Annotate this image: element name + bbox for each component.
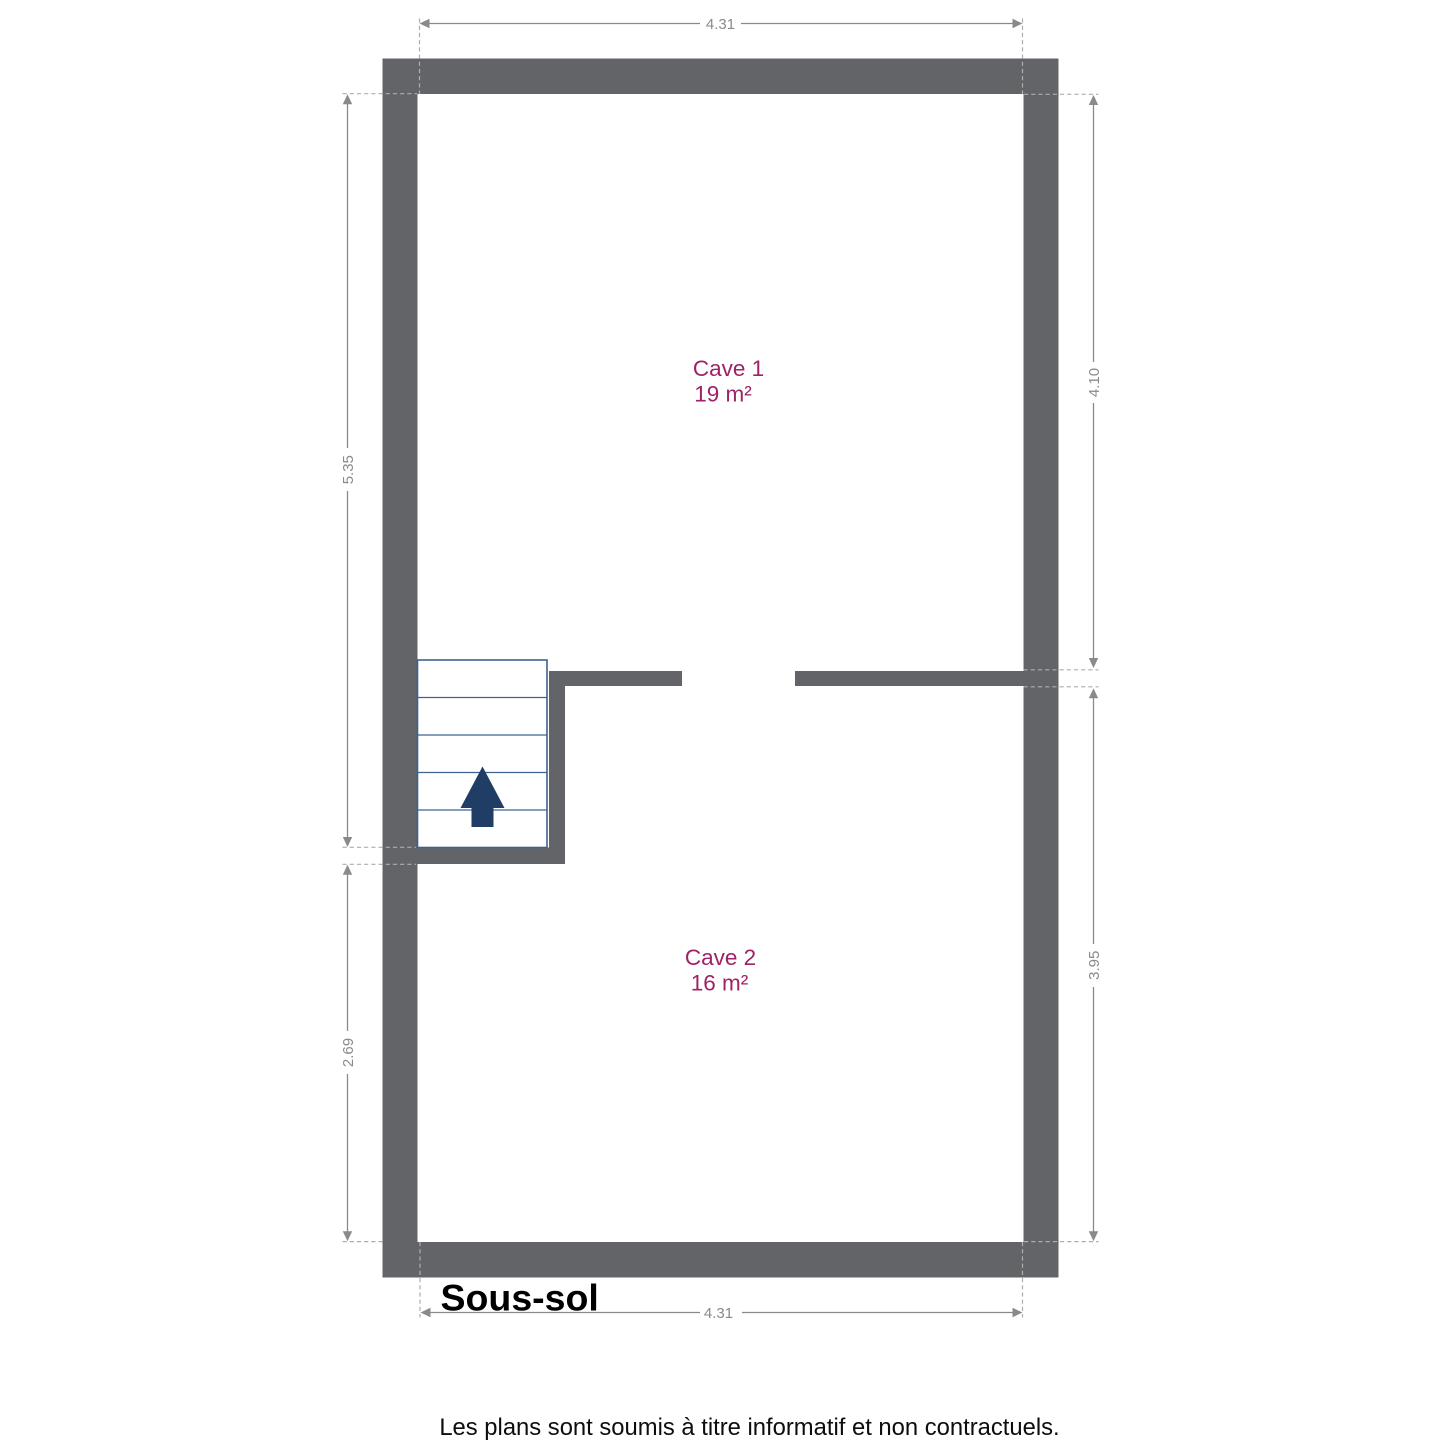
svg-text:16 m²: 16 m² (691, 971, 749, 996)
svg-text:19 m²: 19 m² (694, 382, 752, 407)
svg-text:5.35: 5.35 (340, 455, 357, 484)
svg-text:Cave 2: Cave 2 (685, 945, 756, 970)
svg-text:Cave 1: Cave 1 (693, 356, 764, 381)
svg-text:2.69: 2.69 (340, 1038, 357, 1067)
svg-text:3.95: 3.95 (1086, 951, 1103, 980)
svg-text:4.10: 4.10 (1086, 368, 1103, 397)
svg-text:4.31: 4.31 (704, 1305, 733, 1322)
svg-text:Les plans sont soumis à titre: Les plans sont soumis à titre informatif… (439, 1414, 1059, 1440)
svg-text:Sous-sol: Sous-sol (441, 1277, 599, 1319)
svg-text:4.31: 4.31 (706, 16, 735, 33)
